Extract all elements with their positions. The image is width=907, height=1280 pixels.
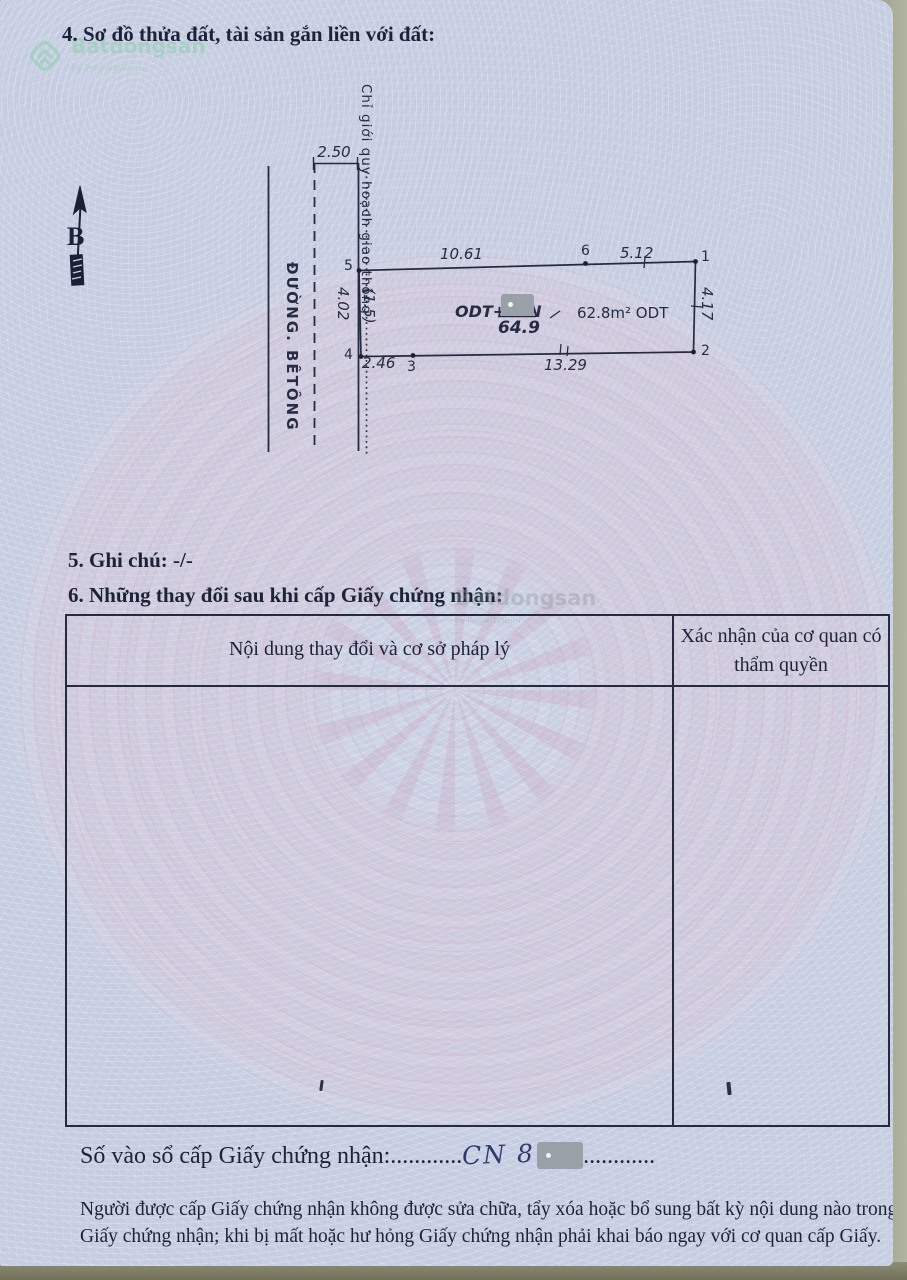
road-width-label: 2.50 [310, 143, 358, 161]
vertex-6-label: 6 [581, 243, 590, 259]
section6-title: 6. Những thay đổi sau khi cấp Giấy chứng… [68, 583, 503, 608]
changes-table: Nội dung thay đổi và cơ sở pháp lý Xác n… [65, 614, 890, 1127]
road-name-label: ĐƯỜNG. BÊTÔNG [283, 262, 301, 432]
north-letter: B [67, 222, 84, 252]
table-header-right: Xác nhận của cơ quan có thẩm quyền [679, 622, 883, 680]
redaction-box-parcel-number [501, 294, 534, 316]
registry-number-line: Số vào sổ cấp Giấy chứng nhận:..........… [80, 1140, 655, 1170]
setback-note: (1.5) [360, 288, 378, 324]
ink-speck [726, 1082, 731, 1095]
vertex-2-label: 2 [701, 343, 710, 359]
planning-boundary-label: Chỉ giới quy hoạch giao thông [358, 84, 374, 315]
edge-top-dimension: 10.61 [440, 245, 483, 263]
redaction-box-registry-number [537, 1142, 583, 1169]
ink-speck [319, 1080, 324, 1091]
edge-bottomleft-dimension: 2.46 [362, 354, 395, 372]
section5-title: 5. Ghi chú: -/- [68, 548, 193, 573]
area-fraction-label: 64.9 [498, 318, 540, 338]
table-header-left: Nội dung thay đổi và cơ sở pháp lý [67, 638, 672, 661]
vertex-5-label: 5 [344, 258, 353, 274]
registry-dotted-line: ............ [390, 1143, 462, 1169]
vertex-3-label: 3 [407, 359, 416, 375]
footer-warning-note: Người được cấp Giấy chứng nhận không đượ… [80, 1196, 893, 1250]
edge-bottom-dimension: 13.29 [544, 356, 587, 374]
watermark-brand-text: Batdongsan [455, 586, 596, 610]
table-column-divider [672, 616, 674, 1125]
photographed-land-certificate-page: { "brand": { "name": "Batdongsan", "sub"… [0, 0, 907, 1280]
edge-right-dimension: 4.17 [698, 287, 716, 320]
edge-left-dimension: 4.02 [334, 287, 352, 320]
registry-dotted-line-after: ............ [583, 1143, 655, 1169]
area-right-label: 62.8m² ODT [577, 304, 668, 322]
certificate-page: Batdongsan by PropertyGuru 4. Sơ đồ thửa… [0, 0, 893, 1266]
desk-surface-right [891, 0, 907, 1280]
registry-handwritten-value: CN 8 [462, 1139, 536, 1171]
table-header-divider [67, 685, 888, 687]
vertex-1-label: 1 [701, 249, 710, 265]
vertex-4-label: 4 [344, 347, 353, 363]
registry-label: Số vào sổ cấp Giấy chứng nhận: [80, 1143, 390, 1169]
edge-topright-dimension: 5.12 [620, 244, 653, 262]
